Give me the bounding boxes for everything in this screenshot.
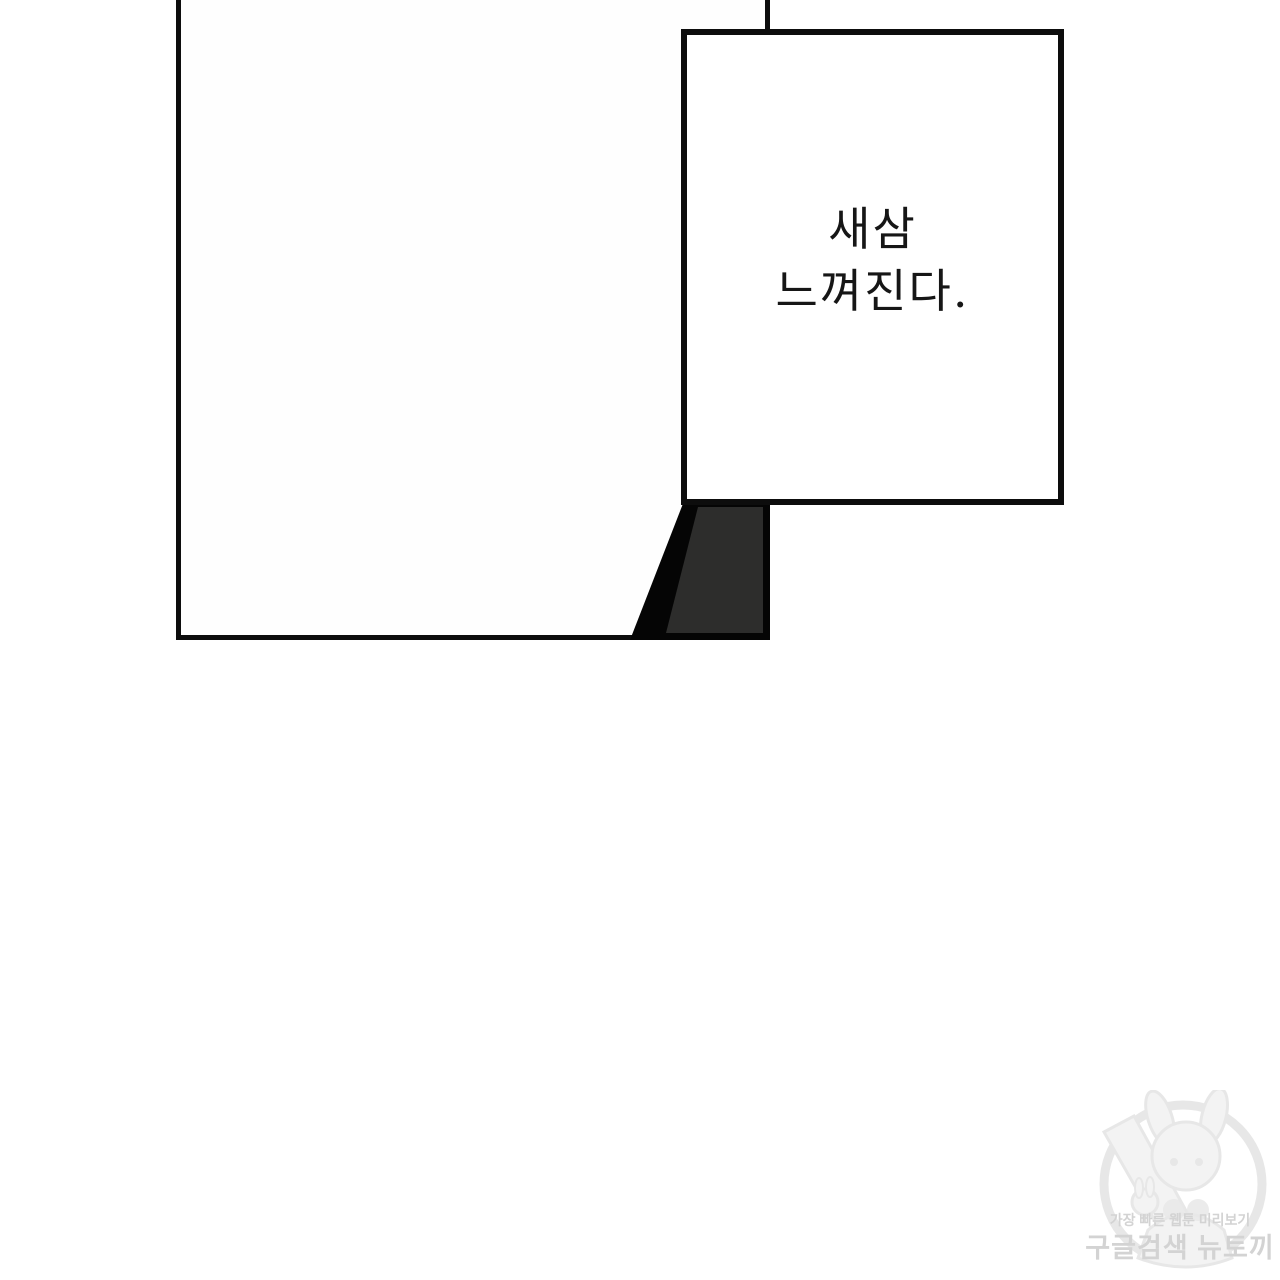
watermark-title: 구글검색 뉴토끼 bbox=[1080, 1226, 1280, 1265]
narration-box: 새삼 느껴진다. bbox=[681, 29, 1064, 505]
webtoon-page: 새삼 느껴진다. 가장 빠른 웹툰 미리보기 bbox=[0, 0, 1280, 1280]
narration-line-2: 느껴진다. bbox=[776, 260, 970, 322]
site-watermark: 가장 빠른 웹툰 미리보기 구글검색 뉴토끼 bbox=[1082, 1090, 1278, 1280]
narration-line-1: 새삼 bbox=[828, 198, 917, 260]
